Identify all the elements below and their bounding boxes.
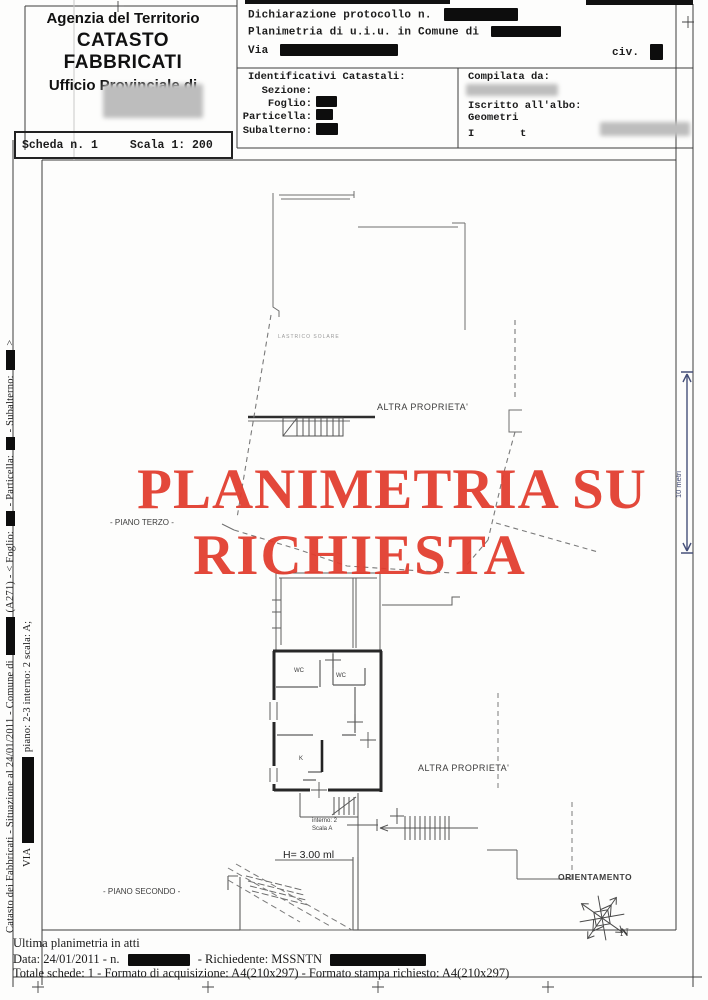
office-name-redacted [103,84,203,118]
protocol-row: Dichiarazione protocollo n. [248,8,518,21]
sidebar-text: - Subalterno: [5,375,16,432]
altra-proprieta-bottom-label: ALTRA PROPRIETA' [418,763,509,773]
room-wc2-label: WC [336,673,346,679]
scale-bar-label: 10 metri [674,428,683,498]
footer-data-text: Data: 24/01/2011 - n. [13,952,119,966]
altra-proprieta-top-label: ALTRA PROPRIETA' [377,402,468,412]
cadastral-document-page: Agenzia del Territorio CATASTO FABBRICAT… [0,0,708,1000]
identificativi-title: Identificativi Catastali: [248,71,406,83]
sidebar-text: Catasto dei Fabbricati - Situazione al 2… [5,660,16,933]
sidebar-subalterno-redacted [7,350,16,370]
sidebar-foglio-redacted [7,511,16,526]
footer-ultima: Ultima planimetria in atti [13,936,140,951]
civ-number-redacted [650,44,663,60]
sidebar-text: VIA [22,848,33,867]
catasto-title: CATASTO FABBRICATI [18,30,228,74]
scan-artifact-bar [586,0,693,5]
compilata-title: Compilata da: [468,71,550,83]
lastrico-solare-label: LASTRICO SOLARE [278,334,340,340]
protocol-label: Dichiarazione protocollo n. [248,9,432,21]
agency-name: Agenzia del Territorio [18,10,228,27]
height-label: H= 3.00 ml [283,849,334,861]
footer-richiedente-text: - Richiedente: MSSNTN [198,952,322,966]
sidebar-reference-line: Catasto dei Fabbricati - Situazione al 2… [5,165,16,933]
albo-label: Iscritto all'albo: [468,100,581,112]
compiler-name-redacted [466,84,558,96]
ramp-hatch [246,876,308,905]
stair-hatch-external [380,808,478,840]
sezione-label: Sezione: [200,85,312,97]
sidebar-text: - Particella: [5,455,16,506]
civ-label: civ. [612,47,639,59]
foglio-value-redacted [316,96,337,107]
via-name-redacted [280,44,398,56]
scale-value: Scala 1: 200 [130,139,213,152]
civ-row: civ. [612,44,663,60]
scheda-number: Scheda n. 1 [22,139,98,152]
room-wc1-label: WC [294,668,304,674]
albo-value: Geometri [468,112,518,124]
agency-header: Agenzia del Territorio CATASTO FABBRICAT… [18,10,228,94]
planimetria-label: Planimetria di u.i.u. in Comune di [248,26,479,38]
albo-fragment-right: t [520,128,526,140]
footer-totale: Totale schede: 1 - Formato di acquisizio… [13,966,509,981]
foglio-label: Foglio: [200,98,312,110]
comune-row: Planimetria di u.i.u. in Comune di [248,26,561,38]
sidebar-text: > [5,339,16,345]
watermark-line2: RICHIESTA [120,527,600,584]
piano-secondo-label: - PIANO SECONDO - [103,887,180,896]
sidebar-text: piano: 2-3 interno: 2 scala: A; [22,621,33,752]
sidebar-particella-redacted [7,437,16,450]
protocol-number-redacted [444,8,518,21]
north-label: N [620,925,629,940]
subalterno-value-redacted [316,123,338,135]
sidebar-text: (A271) - < Foglio: [5,531,16,613]
albo-number-redacted [600,122,690,136]
via-label: Via [248,45,268,57]
particella-value-redacted [316,109,333,120]
interno-label: interno: 2 [312,818,337,824]
room-k-label: K [299,756,303,762]
sidebar-address-line: VIA piano: 2-3 interno: 2 scala: A; [22,595,34,867]
sidebar-comune-redacted [7,617,16,655]
albo-fragment-left: I [468,128,474,140]
compass-rose-icon [567,883,637,953]
scala-a-label: Scala A [312,826,332,832]
footer-number-redacted [128,954,190,966]
footer-richiedente-redacted [330,954,426,966]
via-row: Via [248,44,398,57]
orientamento-label: ORIENTAMENTO [558,872,632,882]
particella-label: Particella: [200,111,312,123]
comune-name-redacted [491,26,561,37]
scan-artifact-bar [245,0,450,4]
watermark-line1: PLANIMETRIA SU [118,461,666,518]
footer-data-row: Data: 24/01/2011 - n. - Richiedente: MSS… [13,952,426,967]
sidebar-via-redacted [22,757,34,843]
subalterno-label: Subalterno: [200,125,312,137]
